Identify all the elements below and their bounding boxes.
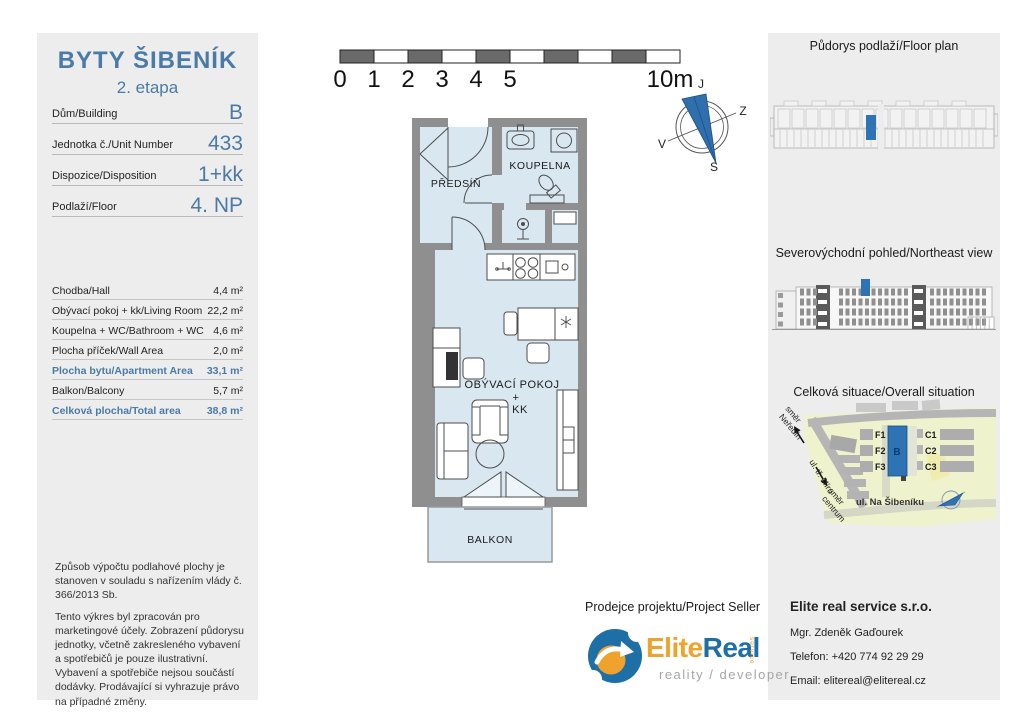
disclaimer-paragraph: Tento výkres byl zpracován pro marketing… [55, 610, 246, 709]
seller-name: Mgr. Zdeněk Gaďourek [790, 627, 932, 639]
scale-bar [340, 50, 680, 63]
northeast-elevation [770, 273, 998, 337]
area-value: 33,1 m² [207, 365, 243, 379]
seller-company: Elite real service s.r.o. [790, 599, 932, 614]
compass-label-south: J [698, 77, 704, 91]
building-label-f1: F1 [875, 430, 886, 440]
area-label: Plocha bytu/Apartment Area [52, 365, 193, 379]
area-value: 38,8 m² [207, 405, 243, 419]
svg-text:1: 1 [367, 66, 380, 93]
info-label: Dispozice/Disposition [52, 170, 157, 185]
building-label-c2: C2 [925, 446, 937, 456]
unit-info-panel: BYTY ŠIBENÍK 2. etapa Dům/Building B Jed… [37, 33, 258, 700]
area-label: Koupelna + WC/Bathroom + WC [52, 325, 204, 339]
balcony-door-opening [462, 497, 545, 507]
apartment-plan: PŘEDSÍŇ KOUPELNA OBÝVACÍ POKOJ + KK BALK… [412, 118, 587, 562]
project-title: BYTY ŠIBENÍK [43, 47, 252, 75]
info-label: Dům/Building [52, 108, 117, 123]
seller-heading: Prodejce projektu/Project Seller [585, 600, 760, 614]
area-label: Celková plocha/Total area [52, 405, 181, 419]
legal-disclaimer: Způsob výpočtu podlahové plochy je stano… [55, 560, 246, 716]
area-value: 2,0 m² [213, 345, 243, 359]
site-map: F1 F2 F3 C1 C2 C3 B směr Neředín ul. tř.… [768, 395, 1000, 545]
building-label-c1: C1 [925, 430, 937, 440]
svg-text:3: 3 [435, 66, 448, 93]
svg-text:2: 2 [401, 66, 414, 93]
room-label-living: OBÝVACÍ POKOJ [465, 378, 560, 391]
svg-text:4: 4 [469, 66, 482, 93]
seller-phone: Telefon: +420 774 92 29 29 [790, 651, 932, 663]
area-label: Balkon/Balcony [52, 385, 124, 399]
building-f3 [860, 461, 873, 472]
area-value: 4,6 m² [213, 325, 243, 339]
area-value: 4,4 m² [213, 285, 243, 299]
building-c1 [940, 429, 974, 440]
info-value: 1+kk [198, 164, 243, 185]
svg-text:5: 5 [503, 66, 516, 93]
room-label-bathroom: KOUPELNA [509, 160, 570, 172]
street-label-sibeniku: ul. Na Šibeníku [856, 496, 924, 508]
entrance-opening [448, 118, 488, 127]
svg-text:+: + [513, 392, 520, 404]
info-row-building: Dům/Building B [52, 93, 243, 124]
compass-label-north: S [710, 160, 718, 174]
building-label-f2: F2 [875, 446, 886, 456]
info-row-floor: Podlaží/Floor 4. NP [52, 186, 243, 217]
section-title-elevation: Severovýchodní pohled/Northeast view [768, 246, 1000, 260]
area-row-walls: Plocha příček/Wall Area 2,0 m² [52, 340, 243, 360]
building-f2 [860, 445, 873, 456]
elitereal-logo-icon [584, 624, 646, 686]
svg-text:0: 0 [333, 66, 346, 93]
disclaimer-paragraph: Způsob výpočtu podlahové plochy je stano… [55, 560, 246, 603]
seller-contact: Elite real service s.r.o. Mgr. Zdeněk Ga… [790, 599, 932, 699]
elitereal-wordmark: EliteReal [646, 632, 760, 664]
building-label-b: B [893, 447, 900, 458]
info-label: Jednotka č./Unit Number [52, 139, 173, 154]
info-value: 433 [208, 133, 243, 154]
floor-plan-drawing: 0 1 2 3 4 5 10m J Z V S [330, 35, 770, 595]
area-row-living: Obývací pokoj + kk/Living Room 22,2 m² [52, 300, 243, 320]
room-label-hall: PŘEDSÍŇ [431, 177, 481, 190]
seller-email: Email: elitereal@elitereal.cz [790, 675, 932, 687]
area-value: 22,2 m² [207, 305, 243, 319]
scale-end-label: 10m [647, 66, 694, 93]
building-c2 [940, 445, 974, 456]
building-label-f3: F3 [875, 462, 886, 472]
info-label: Podlaží/Floor [52, 201, 117, 216]
logo-tagline: reality / developer [659, 667, 790, 682]
area-row-apartment-total: Plocha bytu/Apartment Area 33,1 m² [52, 360, 243, 380]
scale-bar-labels: 0 1 2 3 4 5 10m [333, 66, 693, 93]
logo-service-text: service [748, 637, 755, 665]
svg-text:KK: KK [512, 404, 528, 416]
area-row-grand-total: Celková plocha/Total area 38,8 m² [52, 400, 243, 420]
compass-label-east: V [658, 137, 666, 151]
area-label: Plocha příček/Wall Area [52, 345, 163, 359]
area-row-hall: Chodba/Hall 4,4 m² [52, 280, 243, 300]
area-label: Chodba/Hall [52, 285, 110, 299]
building-label-c3: C3 [925, 462, 937, 472]
area-label: Obývací pokoj + kk/Living Room [52, 305, 202, 319]
brochure-page: BYTY ŠIBENÍK 2. etapa Dům/Building B Jed… [0, 0, 1024, 724]
section-title-floorplan: Půdorys podlaží/Floor plan [768, 39, 1000, 53]
info-value: 4. NP [190, 195, 243, 216]
building-c3 [940, 461, 974, 472]
room-label-balcony: BALKON [467, 534, 513, 546]
compass-label-west: Z [739, 104, 746, 118]
building-floorplan-strip [770, 88, 998, 166]
highlighted-window [861, 279, 870, 296]
unit-info-table: Dům/Building B Jednotka č./Unit Number 4… [52, 93, 243, 217]
area-value: 5,7 m² [213, 385, 243, 399]
info-value: B [229, 102, 243, 123]
building-f1 [860, 429, 873, 440]
area-row-balcony: Balkon/Balcony 5,7 m² [52, 380, 243, 400]
area-row-bathroom: Koupelna + WC/Bathroom + WC 4,6 m² [52, 320, 243, 340]
info-row-disposition: Dispozice/Disposition 1+kk [52, 155, 243, 186]
area-table: Chodba/Hall 4,4 m² Obývací pokoj + kk/Li… [52, 280, 243, 420]
location-panel: Půdorys podlaží/Floor plan Severovýchodn… [768, 33, 1000, 700]
info-row-unit-number: Jednotka č./Unit Number 433 [52, 124, 243, 155]
highlighted-unit [866, 115, 876, 140]
